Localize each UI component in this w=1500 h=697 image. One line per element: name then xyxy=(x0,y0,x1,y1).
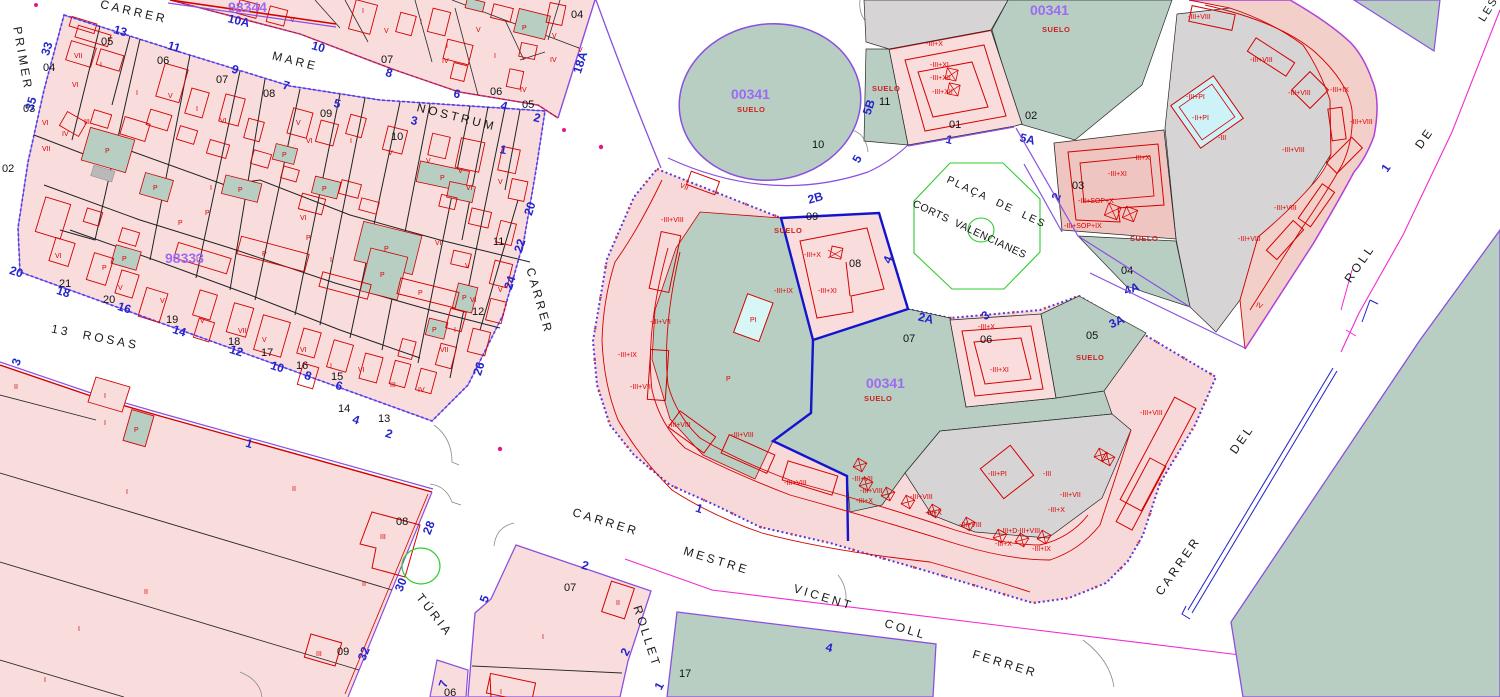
svg-text:IV: IV xyxy=(62,131,69,138)
svg-text:-III+IX: -III+IX xyxy=(618,352,637,359)
svg-text:I: I xyxy=(420,19,422,26)
svg-text:-III+VIII: -III+VIII xyxy=(731,432,754,439)
svg-text:01: 01 xyxy=(949,119,961,131)
svg-text:07: 07 xyxy=(564,582,576,594)
svg-text:VII: VII xyxy=(440,347,449,354)
svg-text:I: I xyxy=(104,393,106,400)
svg-text:06: 06 xyxy=(490,86,502,98)
svg-text:I: I xyxy=(210,185,212,192)
svg-text:I: I xyxy=(350,138,352,145)
svg-text:-III+SOP+X: -III+SOP+X xyxy=(1078,198,1114,205)
svg-text:11: 11 xyxy=(879,96,890,108)
svg-text:-III+VIII: -III+VIII xyxy=(1188,14,1211,21)
svg-text:I: I xyxy=(100,62,102,69)
svg-text:VI: VI xyxy=(358,367,365,374)
svg-text:VII: VII xyxy=(42,146,51,153)
svg-text:-III+VIII: -III+VIII xyxy=(1238,236,1261,243)
svg-text:06: 06 xyxy=(980,334,992,346)
svg-text:P: P xyxy=(432,327,437,334)
svg-text:-III+VIII: -III+VIII xyxy=(860,488,883,495)
svg-text:-III+VII: -III+VII xyxy=(852,476,873,483)
svg-text:I: I xyxy=(44,677,46,684)
svg-text:I: I xyxy=(542,634,544,641)
svg-text:III: III xyxy=(316,651,322,658)
svg-text:-III+XI: -III+XI xyxy=(990,367,1009,374)
svg-text:20: 20 xyxy=(103,294,115,306)
svg-text:08: 08 xyxy=(396,516,408,528)
svg-text:13: 13 xyxy=(378,413,390,425)
svg-text:17: 17 xyxy=(679,668,691,680)
svg-text:17: 17 xyxy=(261,347,273,359)
svg-text:-II+PI: -II+PI xyxy=(1192,115,1209,122)
svg-text:VI: VI xyxy=(306,138,313,145)
svg-text:V: V xyxy=(552,33,557,40)
svg-text:I: I xyxy=(196,106,198,113)
svg-text:-III+VIII: -III+VIII xyxy=(959,522,982,529)
svg-text:V: V xyxy=(426,158,431,165)
svg-text:V: V xyxy=(168,93,173,100)
svg-text:05: 05 xyxy=(101,36,113,48)
svg-text:P: P xyxy=(418,290,423,297)
svg-text:07: 07 xyxy=(216,74,228,86)
svg-text:SUELO: SUELO xyxy=(774,226,802,235)
svg-text:-III: -III xyxy=(1043,471,1051,478)
svg-text:VI: VI xyxy=(55,253,62,260)
svg-text:11: 11 xyxy=(493,236,504,248)
svg-text:P: P xyxy=(726,376,731,383)
svg-text:10: 10 xyxy=(812,139,824,151)
svg-text:P: P xyxy=(102,265,107,272)
svg-text:V: V xyxy=(296,120,301,127)
svg-text:P: P xyxy=(262,251,267,258)
svg-text:VI: VI xyxy=(466,185,473,192)
svg-text:05: 05 xyxy=(1086,330,1098,342)
svg-text:-III+VII: -III+VII xyxy=(630,384,651,391)
svg-text:03: 03 xyxy=(1072,180,1084,192)
svg-text:-III+X: -III+X xyxy=(925,510,942,517)
svg-text:V: V xyxy=(476,27,481,34)
svg-text:SUELO: SUELO xyxy=(1042,25,1070,34)
svg-text:P: P xyxy=(134,427,139,434)
svg-text:V: V xyxy=(200,318,205,325)
svg-text:P: P xyxy=(380,272,385,279)
svg-text:VI: VI xyxy=(470,297,477,304)
svg-text:-III+X: -III+X xyxy=(856,498,873,505)
svg-text:-III+D-III+VIII: -III+D-III+VIII xyxy=(1000,528,1040,535)
svg-text:-III+IX: -III+IX xyxy=(1032,546,1051,553)
svg-text:IV: IV xyxy=(520,87,527,94)
svg-text:P: P xyxy=(522,25,527,32)
svg-text:-III+XI: -III+XI xyxy=(818,288,837,295)
svg-text:-III+X: -III+X xyxy=(995,541,1012,548)
svg-text:VI: VI xyxy=(435,240,442,247)
svg-text:P: P xyxy=(306,235,311,242)
svg-text:-III+VIII: -III+VIII xyxy=(1140,410,1163,417)
svg-text:14: 14 xyxy=(338,403,350,415)
svg-text:-III+VIII: -III+VIII xyxy=(661,217,684,224)
svg-text:I: I xyxy=(494,53,496,60)
svg-text:V: V xyxy=(458,168,463,175)
svg-text:-III: -III xyxy=(1218,135,1226,142)
svg-text:-III+XI: -III+XI xyxy=(930,62,949,69)
svg-text:-III+X: -III+X xyxy=(1133,155,1150,162)
svg-text:-III+X: -III+X xyxy=(978,324,995,331)
svg-text:-III+X: -III+X xyxy=(926,41,943,48)
svg-text:V: V xyxy=(118,285,123,292)
svg-text:-III+X: -III+X xyxy=(804,252,821,259)
svg-text:I: I xyxy=(126,489,128,496)
svg-text:I: I xyxy=(104,420,106,427)
svg-text:P: P xyxy=(122,256,127,263)
svg-text:-III+VIII: -III+VIII xyxy=(910,494,933,501)
svg-text:09: 09 xyxy=(320,108,332,120)
svg-text:P: P xyxy=(105,148,110,155)
svg-text:V: V xyxy=(160,298,165,305)
svg-text:-III+VIII: -III+VIII xyxy=(1250,57,1273,64)
svg-text:-III+VII: -III+VII xyxy=(650,319,671,326)
svg-text:VI: VI xyxy=(300,347,307,354)
svg-text:P: P xyxy=(384,246,389,253)
svg-text:07: 07 xyxy=(903,333,915,345)
svg-text:98333: 98333 xyxy=(165,250,204,266)
svg-text:02: 02 xyxy=(2,163,14,175)
svg-text:-III+PI: -III+PI xyxy=(988,471,1007,478)
svg-text:III: III xyxy=(84,119,90,126)
svg-text:SUELO: SUELO xyxy=(1130,234,1158,243)
svg-text:-III+VIII: -III+VIII xyxy=(1274,205,1297,212)
svg-text:00341: 00341 xyxy=(731,86,770,102)
svg-text:-III+VIII: -III+VIII xyxy=(1282,147,1305,154)
svg-text:-III+VIII: -III+VIII xyxy=(1350,119,1373,126)
svg-text:I: I xyxy=(454,327,456,334)
svg-text:II: II xyxy=(292,486,296,493)
svg-text:10: 10 xyxy=(391,131,403,143)
svg-text:-III+VII: -III+VII xyxy=(1060,492,1081,499)
svg-text:V: V xyxy=(498,179,503,186)
svg-text:VI: VI xyxy=(220,118,227,125)
svg-text:-III+VIII: -III+VIII xyxy=(784,480,807,487)
svg-text:P: P xyxy=(178,220,183,227)
svg-text:IV: IV xyxy=(418,387,425,394)
svg-text:SUELO: SUELO xyxy=(864,394,892,403)
svg-text:-III+XI: -III+XI xyxy=(1108,171,1127,178)
svg-text:I: I xyxy=(446,43,448,50)
svg-text:00341: 00341 xyxy=(866,375,905,391)
svg-text:08: 08 xyxy=(849,258,861,270)
svg-text:04: 04 xyxy=(43,62,55,74)
svg-text:P: P xyxy=(322,186,327,193)
svg-text:09: 09 xyxy=(806,211,818,223)
svg-text:II: II xyxy=(14,384,18,391)
svg-text:06: 06 xyxy=(157,55,169,67)
svg-text:IV: IV xyxy=(550,57,557,64)
svg-text:V: V xyxy=(465,263,470,270)
svg-text:I: I xyxy=(136,90,138,97)
svg-text:-III+IX: -III+IX xyxy=(1330,87,1349,94)
svg-text:III: III xyxy=(380,534,386,541)
svg-text:-III+XII: -III+XII xyxy=(930,75,951,82)
svg-text:I: I xyxy=(330,363,332,370)
svg-text:-III+PI: -III+PI xyxy=(1186,94,1205,101)
svg-text:VI: VI xyxy=(72,82,79,89)
svg-text:SUELO: SUELO xyxy=(737,105,765,114)
svg-text:VII: VII xyxy=(74,53,83,60)
svg-text:SUELO: SUELO xyxy=(872,84,900,93)
svg-text:12: 12 xyxy=(472,306,484,318)
svg-text:-III+X: -III+X xyxy=(1048,507,1065,514)
svg-text:VI: VI xyxy=(300,215,307,222)
svg-text:PI: PI xyxy=(750,317,757,324)
svg-text:-III+IX: -III+IX xyxy=(774,288,793,295)
svg-text:VI: VI xyxy=(42,120,49,127)
svg-text:-III+VIII: -III+VIII xyxy=(668,422,691,429)
svg-text:02: 02 xyxy=(1025,110,1037,122)
svg-text:V: V xyxy=(388,150,393,157)
svg-text:IV: IV xyxy=(442,58,449,65)
svg-text:SUELO: SUELO xyxy=(1076,353,1104,362)
svg-text:P: P xyxy=(462,295,467,302)
svg-text:09: 09 xyxy=(337,646,349,658)
svg-text:P: P xyxy=(205,210,210,217)
svg-text:II: II xyxy=(144,589,148,596)
svg-text:VII: VII xyxy=(238,328,247,335)
svg-text:II: II xyxy=(616,600,620,607)
svg-text:I: I xyxy=(500,689,502,696)
svg-text:P: P xyxy=(238,187,243,194)
svg-text:-III+VIII: -III+VIII xyxy=(1288,90,1311,97)
svg-text:III: III xyxy=(390,382,396,389)
svg-text:V: V xyxy=(262,337,267,344)
svg-text:05: 05 xyxy=(522,99,534,111)
svg-text:I: I xyxy=(330,257,332,264)
svg-text:P: P xyxy=(153,185,158,192)
svg-text:-III+XII: -III+XII xyxy=(932,89,953,96)
svg-text:I: I xyxy=(78,626,80,633)
svg-text:-III+SOP+IX: -III+SOP+IX xyxy=(1064,223,1102,230)
svg-text:P: P xyxy=(440,175,445,182)
svg-text:V: V xyxy=(384,28,389,35)
svg-text:II: II xyxy=(362,581,366,588)
svg-text:I: I xyxy=(362,8,364,15)
svg-text:08: 08 xyxy=(263,88,275,100)
svg-text:04: 04 xyxy=(571,9,583,21)
svg-text:00341: 00341 xyxy=(1030,2,1069,18)
svg-text:P: P xyxy=(282,152,287,159)
